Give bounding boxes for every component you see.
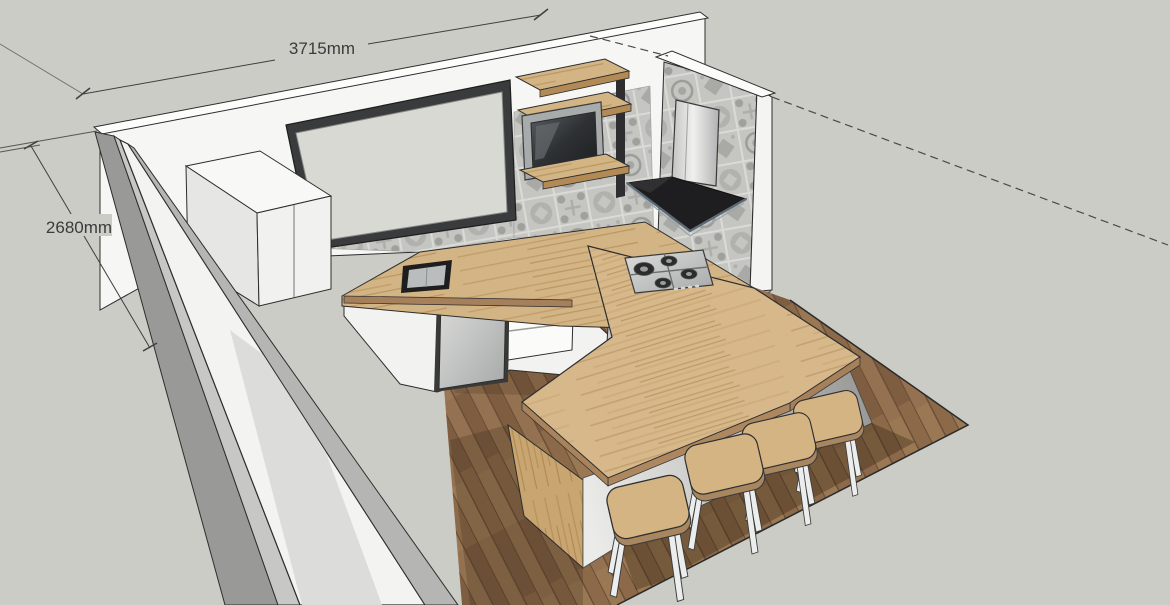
hood-duct (672, 100, 719, 186)
gas-cooktop[interactable] (625, 250, 713, 293)
width-dimension-label: 3715mm (289, 39, 355, 58)
height-dimension-label: 2680mm (46, 218, 112, 237)
shelf-post (616, 70, 625, 198)
viewport-3d[interactable]: 3715mm 2680mm (0, 0, 1170, 605)
